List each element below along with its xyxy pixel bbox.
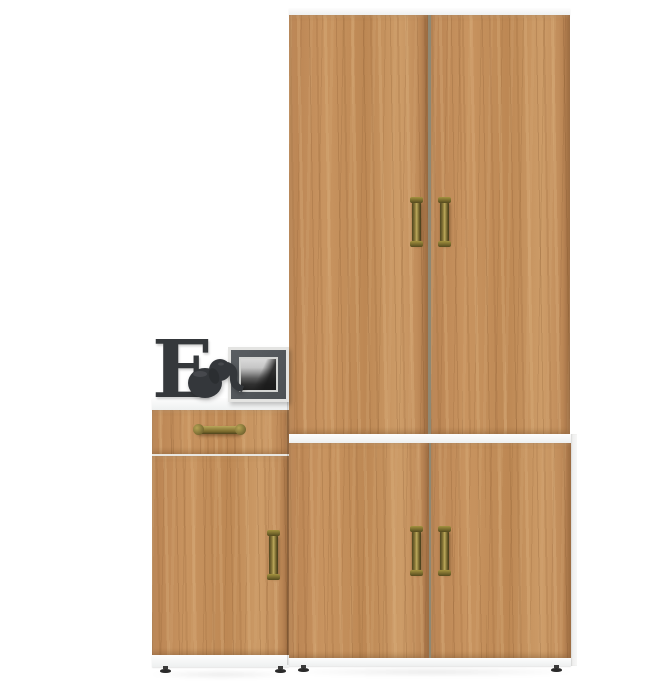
wardrobe-lower-right-door bbox=[431, 443, 571, 658]
chest-door-handle bbox=[269, 533, 278, 577]
wardrobe-right-side-panel bbox=[571, 434, 577, 666]
wardrobe-top-edge bbox=[289, 8, 570, 15]
wardrobe-lower-left-door-handle bbox=[412, 529, 421, 573]
chest-drawer-handle bbox=[197, 426, 242, 434]
wardrobe-upper-right-door-handle bbox=[440, 200, 449, 244]
chest-wardrobe-seam bbox=[287, 400, 289, 665]
chest-base-strip bbox=[152, 655, 289, 667]
wardrobe-upper-right-door bbox=[431, 15, 570, 434]
wardrobe-base-strip bbox=[289, 658, 571, 666]
wardrobe-lower-right-door-handle bbox=[440, 529, 449, 573]
wardrobe-lower-left-door bbox=[289, 443, 429, 658]
product-photo-stage: E bbox=[0, 0, 663, 700]
wardrobe-middle-divider bbox=[289, 434, 571, 443]
wardrobe-upper-left-door-handle bbox=[412, 200, 421, 244]
wardrobe-floor-shadow bbox=[284, 668, 580, 676]
elephant-figurine-icon bbox=[184, 353, 250, 399]
wardrobe-upper-left-door bbox=[289, 15, 428, 434]
chest-floor-shadow bbox=[148, 671, 294, 678]
